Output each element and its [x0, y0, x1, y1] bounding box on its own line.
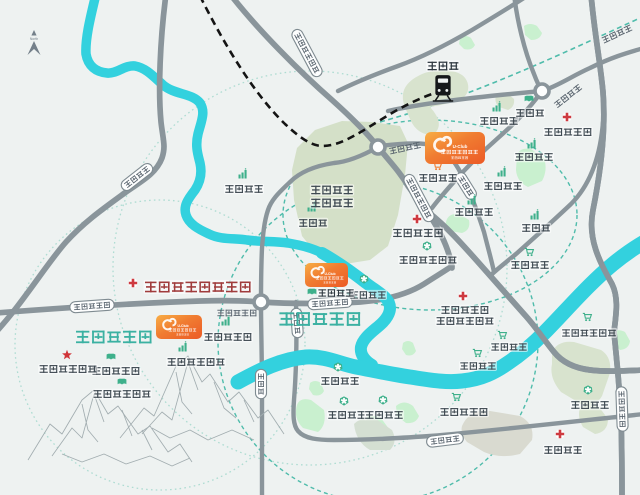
svg-text:U-Club: U-Club: [177, 324, 188, 328]
svg-text:U-Club: U-Club: [453, 144, 468, 149]
svg-text:U-Club: U-Club: [324, 272, 335, 276]
svg-text:North: North: [30, 37, 38, 41]
